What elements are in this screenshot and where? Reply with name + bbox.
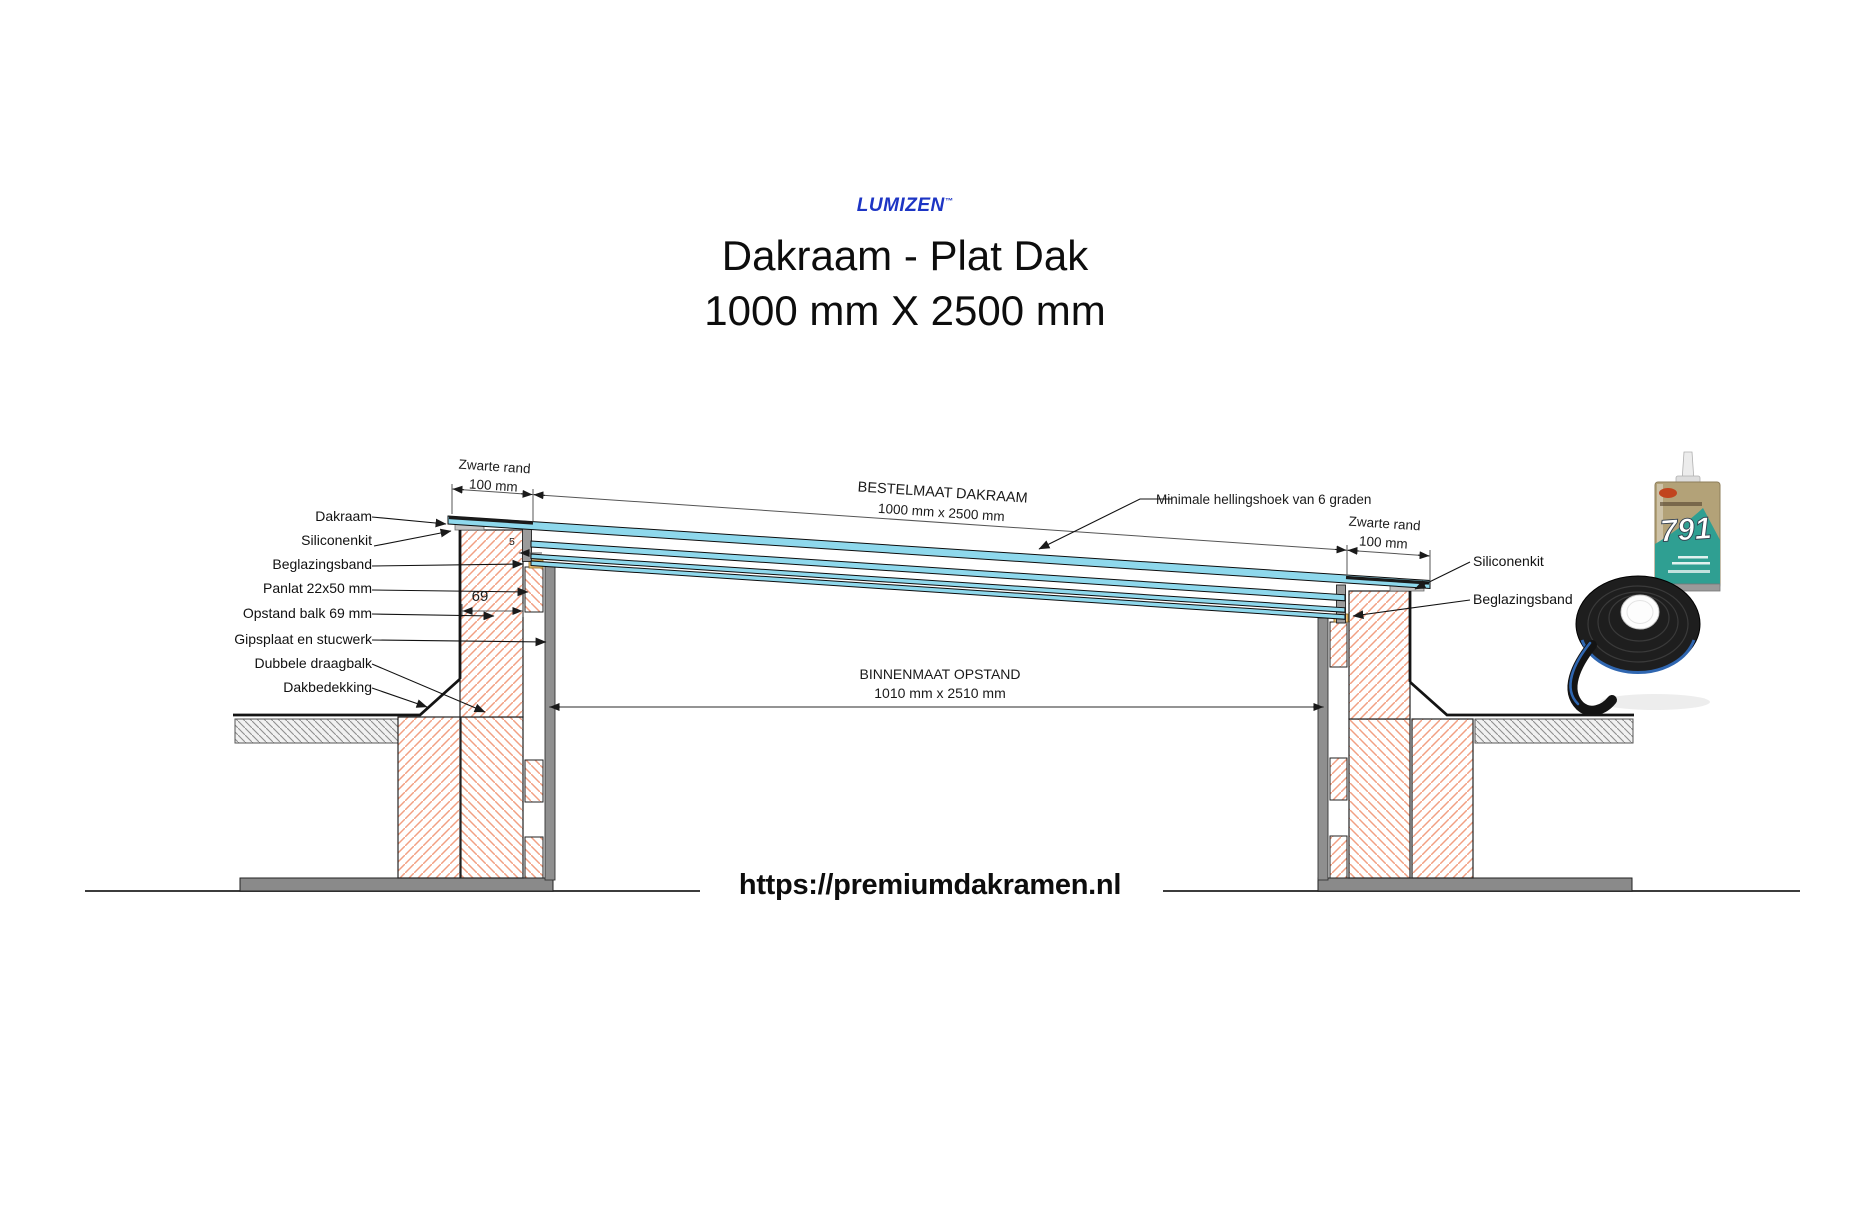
brand-logo-text: LUMIZEN <box>857 195 945 216</box>
trademark-symbol: ™ <box>945 197 954 206</box>
website-url[interactable]: https://premiumdakramen.nl <box>733 869 1127 902</box>
label-gipsplaat: Gipsplaat en stucwerk <box>234 631 372 647</box>
glass-panes <box>448 516 1430 619</box>
left-gipsplaat <box>545 564 555 880</box>
glazing-tape-roll-image <box>1570 576 1710 711</box>
left-opstand-post <box>460 530 523 717</box>
label-beglazingsband-left: Beglazingsband <box>272 556 372 572</box>
right-double-beam <box>1349 719 1473 878</box>
dim-glass-gap: 5 <box>509 533 515 552</box>
label-dubbele-draagbalk: Dubbele draagbalk <box>254 655 372 671</box>
glass-pane-inner-a <box>531 554 1345 612</box>
page: 791 LUMIZEN™ Dakraam - Plat Dak 1000 mm … <box>0 0 1869 1209</box>
glass-pane-top <box>448 516 1430 589</box>
drawing-title: Dakraam - Plat Dak <box>722 232 1088 280</box>
right-gipsplaat <box>1318 618 1328 880</box>
slope-note: Minimale hellingshoek van 6 graden <box>1156 490 1371 509</box>
brand-logo: LUMIZEN™ <box>857 195 953 217</box>
label-panlat: Panlat 22x50 mm <box>263 580 372 596</box>
label-siliconenkit-left: Siliconenkit <box>301 532 372 548</box>
left-roof-deck <box>235 719 399 743</box>
label-opstand-balk: Opstand balk 69 mm <box>243 605 372 621</box>
right-roof-deck <box>1475 719 1633 743</box>
drawing-size: 1000 mm X 2500 mm <box>704 287 1106 335</box>
right-opstand-post <box>1349 591 1410 719</box>
right-panlat-blocks <box>1330 622 1347 878</box>
sealant-number-text: 791 <box>1659 510 1713 549</box>
left-panlat-blocks <box>525 567 543 878</box>
dim-binnenmaat-line1: BINNENMAAT OPSTAND <box>810 665 1070 684</box>
label-siliconenkit-right: Siliconenkit <box>1473 553 1544 569</box>
left-double-beam <box>398 717 523 878</box>
dim-opstand-width: 69 <box>450 587 510 606</box>
left-footing <box>240 878 553 891</box>
right-footing <box>1318 878 1632 891</box>
dim-binnenmaat-line2: 1010 mm x 2510 mm <box>810 684 1070 703</box>
dim-binnenmaat: BINNENMAAT OPSTAND 1010 mm x 2510 mm <box>810 665 1070 703</box>
label-dakbedekking: Dakbedekking <box>283 679 372 695</box>
label-beglazingsband-right: Beglazingsband <box>1473 591 1573 607</box>
label-dakraam: Dakraam <box>315 508 372 524</box>
sealant-cartridge-image: 791 <box>1655 452 1720 591</box>
